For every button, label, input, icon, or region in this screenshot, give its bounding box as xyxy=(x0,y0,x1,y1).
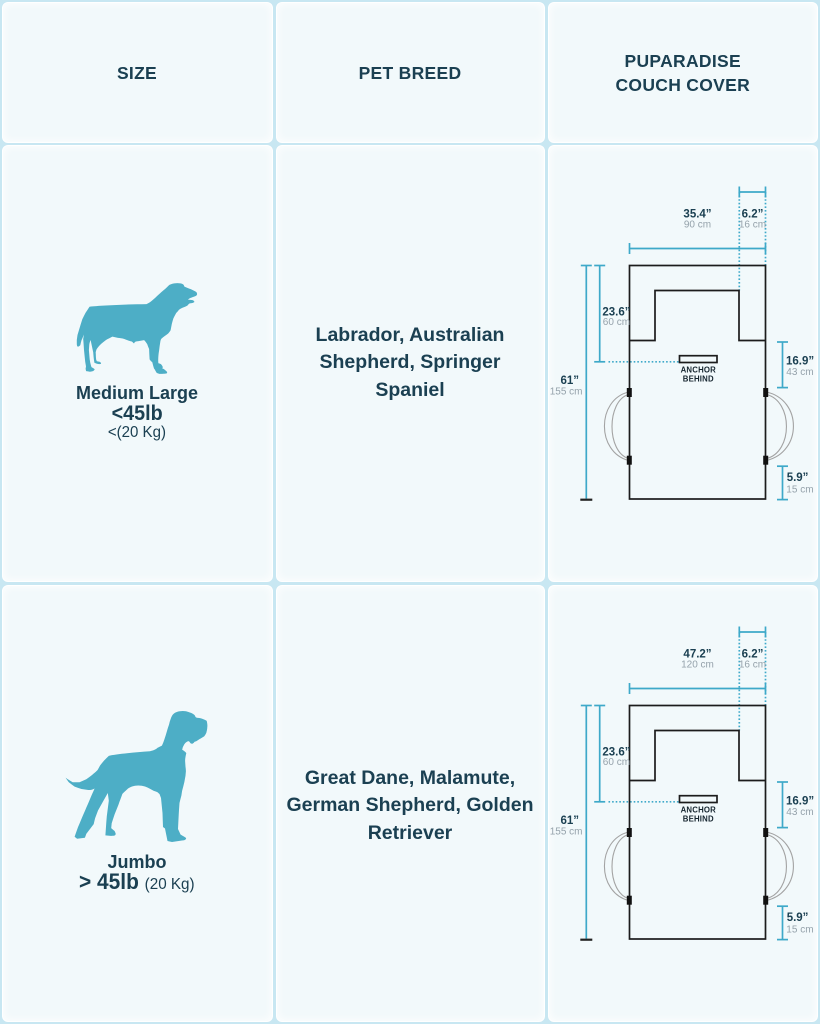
svg-text:155 cm: 155 cm xyxy=(550,827,583,838)
svg-text:16 cm: 16 cm xyxy=(739,220,766,231)
svg-text:60 cm: 60 cm xyxy=(603,317,630,328)
svg-text:16 cm: 16 cm xyxy=(739,660,766,671)
svg-text:90 cm: 90 cm xyxy=(684,220,711,231)
svg-text:61”: 61” xyxy=(560,375,579,387)
svg-text:15 cm: 15 cm xyxy=(786,485,813,496)
svg-text:15 cm: 15 cm xyxy=(786,925,813,936)
svg-text:5.9”: 5.9” xyxy=(787,472,809,484)
svg-text:ANCHOR: ANCHOR xyxy=(681,806,717,815)
svg-text:16.9”: 16.9” xyxy=(786,356,814,368)
svg-text:BEHIND: BEHIND xyxy=(683,815,714,824)
svg-text:BEHIND: BEHIND xyxy=(683,375,714,384)
svg-text:61”: 61” xyxy=(560,815,579,827)
svg-text:43 cm: 43 cm xyxy=(786,807,813,818)
svg-text:43 cm: 43 cm xyxy=(786,367,813,378)
svg-text:155 cm: 155 cm xyxy=(550,387,583,398)
svg-text:ANCHOR: ANCHOR xyxy=(681,366,717,375)
svg-text:120 cm: 120 cm xyxy=(681,660,714,671)
svg-text:5.9”: 5.9” xyxy=(787,912,809,924)
svg-text:16.9”: 16.9” xyxy=(786,796,814,808)
svg-text:60 cm: 60 cm xyxy=(603,757,630,768)
